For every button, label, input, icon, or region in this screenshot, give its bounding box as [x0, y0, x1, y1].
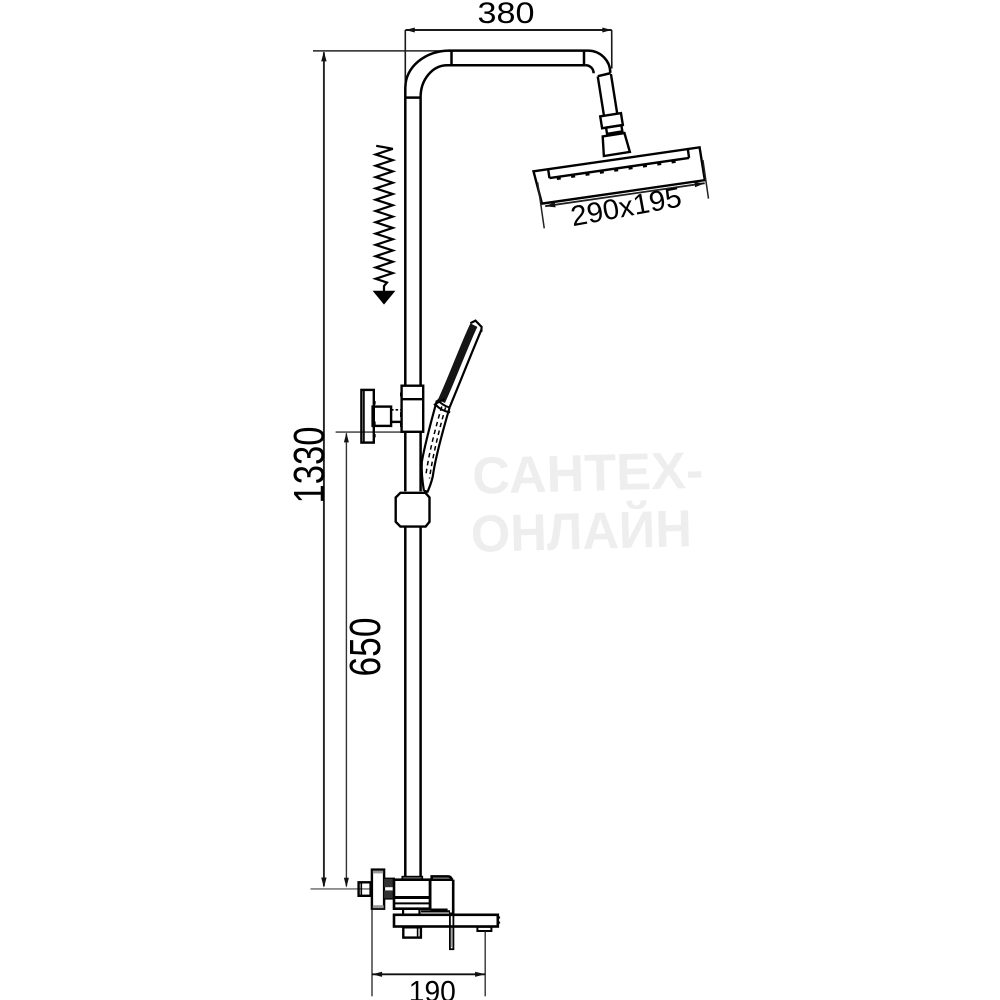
- svg-text:190: 190: [409, 976, 456, 1000]
- svg-text:САНТЕХ-: САНТЕХ-: [472, 442, 704, 506]
- svg-text:1330: 1330: [285, 427, 334, 504]
- svg-text:ОНЛАЙН: ОНЛАЙН: [470, 499, 692, 564]
- svg-text:380: 380: [478, 0, 535, 30]
- svg-text:650: 650: [341, 618, 390, 677]
